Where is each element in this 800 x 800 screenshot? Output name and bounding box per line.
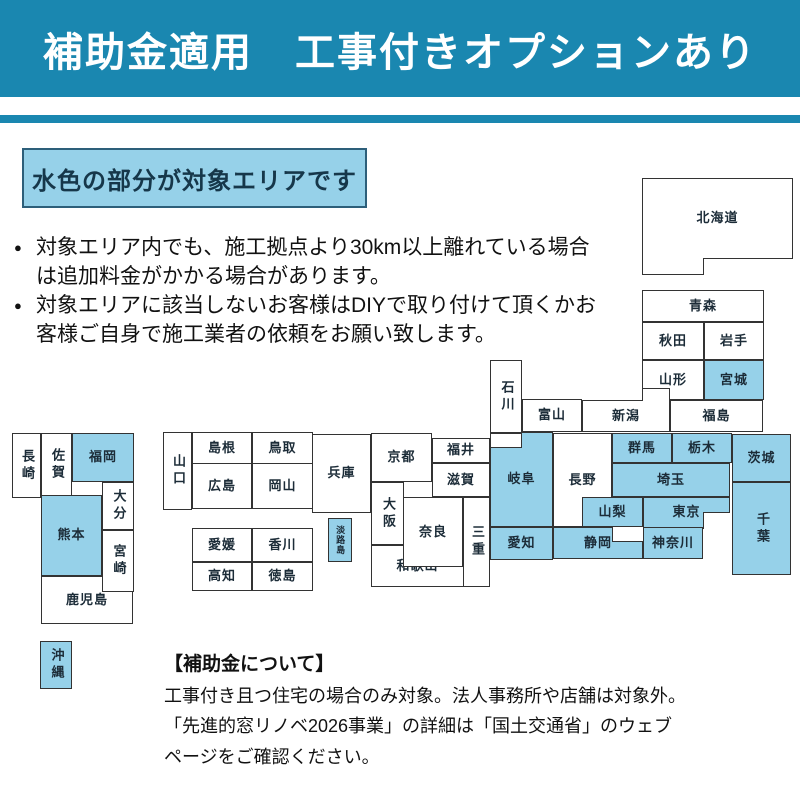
pref-kagawa: 香川 <box>252 528 313 562</box>
pref-hiroshima: 広島 <box>192 463 252 509</box>
pref-iwate: 岩手 <box>704 322 764 360</box>
pref-ishikawa: 石川 <box>490 360 522 433</box>
pref-shimane: 島根 <box>192 432 252 464</box>
pref-fukuoka: 福岡 <box>72 433 134 482</box>
pref-fukushima: 福島 <box>670 400 763 432</box>
pref-aomori: 青森 <box>642 290 764 322</box>
pref-gunma: 群馬 <box>612 433 672 463</box>
pref-nagasaki: 長崎 <box>12 433 41 498</box>
pref-ehime: 愛媛 <box>192 528 252 562</box>
pref-niigata-step <box>642 388 670 401</box>
pref-nara: 奈良 <box>403 497 463 567</box>
pref-miyazaki: 宮崎 <box>102 530 134 592</box>
pref-fukui: 福井 <box>432 438 490 463</box>
pref-yamaguchi: 山口 <box>163 432 192 510</box>
pref-oita: 大分 <box>102 482 134 530</box>
pref-okinawa: 沖縄 <box>40 641 72 689</box>
page: 補助金適用 工事付きオプションあり 水色の部分が対象エリアです ●対象エリア内で… <box>0 0 800 800</box>
pref-hokkaido: 北海道 <box>642 178 793 259</box>
pref-kanagawa: 神奈川 <box>643 527 703 559</box>
footer-line-3: ページをご確認ください。 <box>164 742 784 773</box>
pref-osaka: 大阪 <box>371 482 404 545</box>
pref-kochi: 高知 <box>192 562 252 591</box>
pref-kyoto: 京都 <box>371 433 432 482</box>
pref-okayama: 岡山 <box>252 463 313 509</box>
pref-mie: 三重 <box>463 497 490 587</box>
pref-fukui-step <box>490 433 522 448</box>
footer-heading: 【補助金について】 <box>164 650 784 681</box>
pref-tottori: 鳥取 <box>252 432 313 464</box>
footer-line-1: 工事付き且つ住宅の場合のみ対象。法人事務所や店舗は対象外。 <box>164 681 784 712</box>
subsidy-footer: 【補助金について】 工事付き且つ住宅の場合のみ対象。法人事務所や店舗は対象外。「… <box>164 650 784 772</box>
pref-hokkaido-tab <box>642 258 704 275</box>
pref-tokushima: 徳島 <box>252 562 313 591</box>
pref-sagami-notch <box>612 527 643 542</box>
pref-tochigi: 栃木 <box>672 433 732 463</box>
pref-awaji: 淡路島 <box>328 518 352 562</box>
pref-tokyo-bay-notch <box>703 512 730 529</box>
pref-yamanashi: 山梨 <box>582 497 643 527</box>
pref-aichi: 愛知 <box>490 527 553 560</box>
pref-shiga: 滋賀 <box>432 463 490 497</box>
pref-ibaraki: 茨城 <box>732 434 791 482</box>
pref-saga: 佐賀 <box>41 433 72 496</box>
pref-toyama: 富山 <box>522 399 582 432</box>
pref-kumamoto: 熊本 <box>41 495 102 576</box>
pref-akita: 秋田 <box>642 322 704 360</box>
footer-line-2: 「先進的窓リノベ2026事業」の詳細は「国土交通省」のウェブ <box>164 711 784 742</box>
pref-chiba: 千葉 <box>732 482 791 575</box>
pref-saitama: 埼玉 <box>612 463 730 497</box>
pref-miyagi: 宮城 <box>704 360 764 400</box>
pref-hyogo: 兵庫 <box>312 434 371 513</box>
pref-niigata: 新潟 <box>582 400 670 432</box>
